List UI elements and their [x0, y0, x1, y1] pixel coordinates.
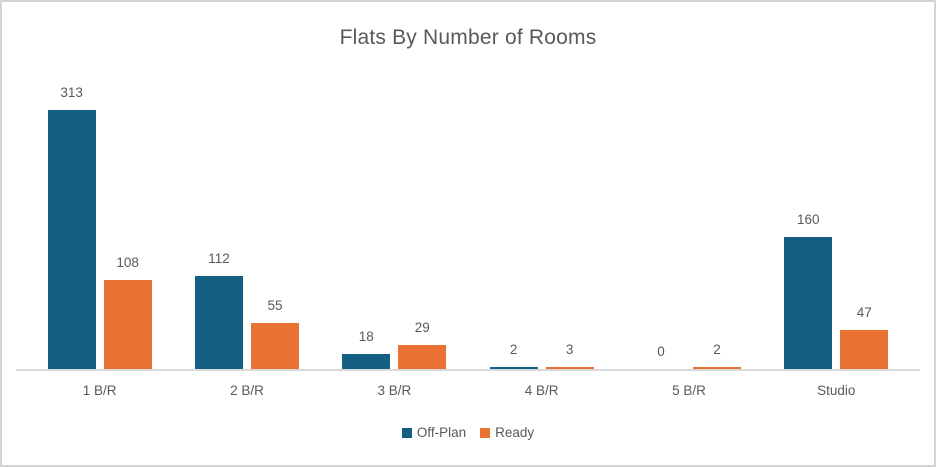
bar-value-label: 112: [208, 252, 230, 266]
bar-value-label: 3: [566, 343, 574, 357]
legend-swatch: [402, 428, 412, 438]
bar: 108: [104, 280, 152, 369]
bar-value-label: 0: [657, 345, 665, 359]
bar-value-label: 313: [60, 86, 83, 100]
x-axis-labels: 1 B/R2 B/R3 B/R4 B/R5 B/RStudio: [26, 371, 910, 398]
bar-value-label: 18: [359, 330, 374, 344]
x-axis-label: 4 B/R: [468, 383, 615, 398]
x-axis-label: 5 B/R: [615, 383, 762, 398]
plot-area: 313108112551829230216047: [26, 52, 910, 369]
chart-container: Flats By Number of Rooms 313108112551829…: [0, 0, 936, 467]
legend-item: Off-Plan: [402, 425, 466, 440]
x-axis-label: 3 B/R: [321, 383, 468, 398]
bar: 2: [693, 367, 741, 369]
x-axis-label: 1 B/R: [26, 383, 173, 398]
bar: 47: [840, 330, 888, 369]
bar-group: 1829: [321, 52, 468, 369]
bar-group: 313108: [26, 52, 173, 369]
bar: 29: [398, 345, 446, 369]
bar-group: 23: [468, 52, 615, 369]
bar-value-label: 55: [267, 299, 282, 313]
bar-group: 16047: [763, 52, 910, 369]
chart-title: Flats By Number of Rooms: [2, 24, 934, 52]
legend-label: Off-Plan: [417, 425, 466, 440]
bar: 2: [490, 367, 538, 369]
bar-value-label: 2: [510, 343, 518, 357]
bar-value-label: 108: [116, 256, 139, 270]
bar-group: 11255: [173, 52, 320, 369]
x-axis-label: 2 B/R: [173, 383, 320, 398]
bar-value-label: 160: [797, 213, 820, 227]
legend-swatch: [480, 428, 490, 438]
bar-group: 02: [615, 52, 762, 369]
legend-label: Ready: [495, 425, 534, 440]
bar: 112: [195, 276, 243, 369]
bar-value-label: 47: [857, 306, 872, 320]
bar-value-label: 2: [713, 343, 721, 357]
bar: 313: [48, 110, 96, 369]
legend: Off-PlanReady: [2, 425, 934, 440]
bar: 160: [784, 237, 832, 369]
bar: 18: [342, 354, 390, 369]
bar: 55: [251, 323, 299, 369]
legend-item: Ready: [480, 425, 534, 440]
x-axis-label: Studio: [763, 383, 910, 398]
bar: 3: [546, 367, 594, 369]
bar-value-label: 29: [415, 321, 430, 335]
